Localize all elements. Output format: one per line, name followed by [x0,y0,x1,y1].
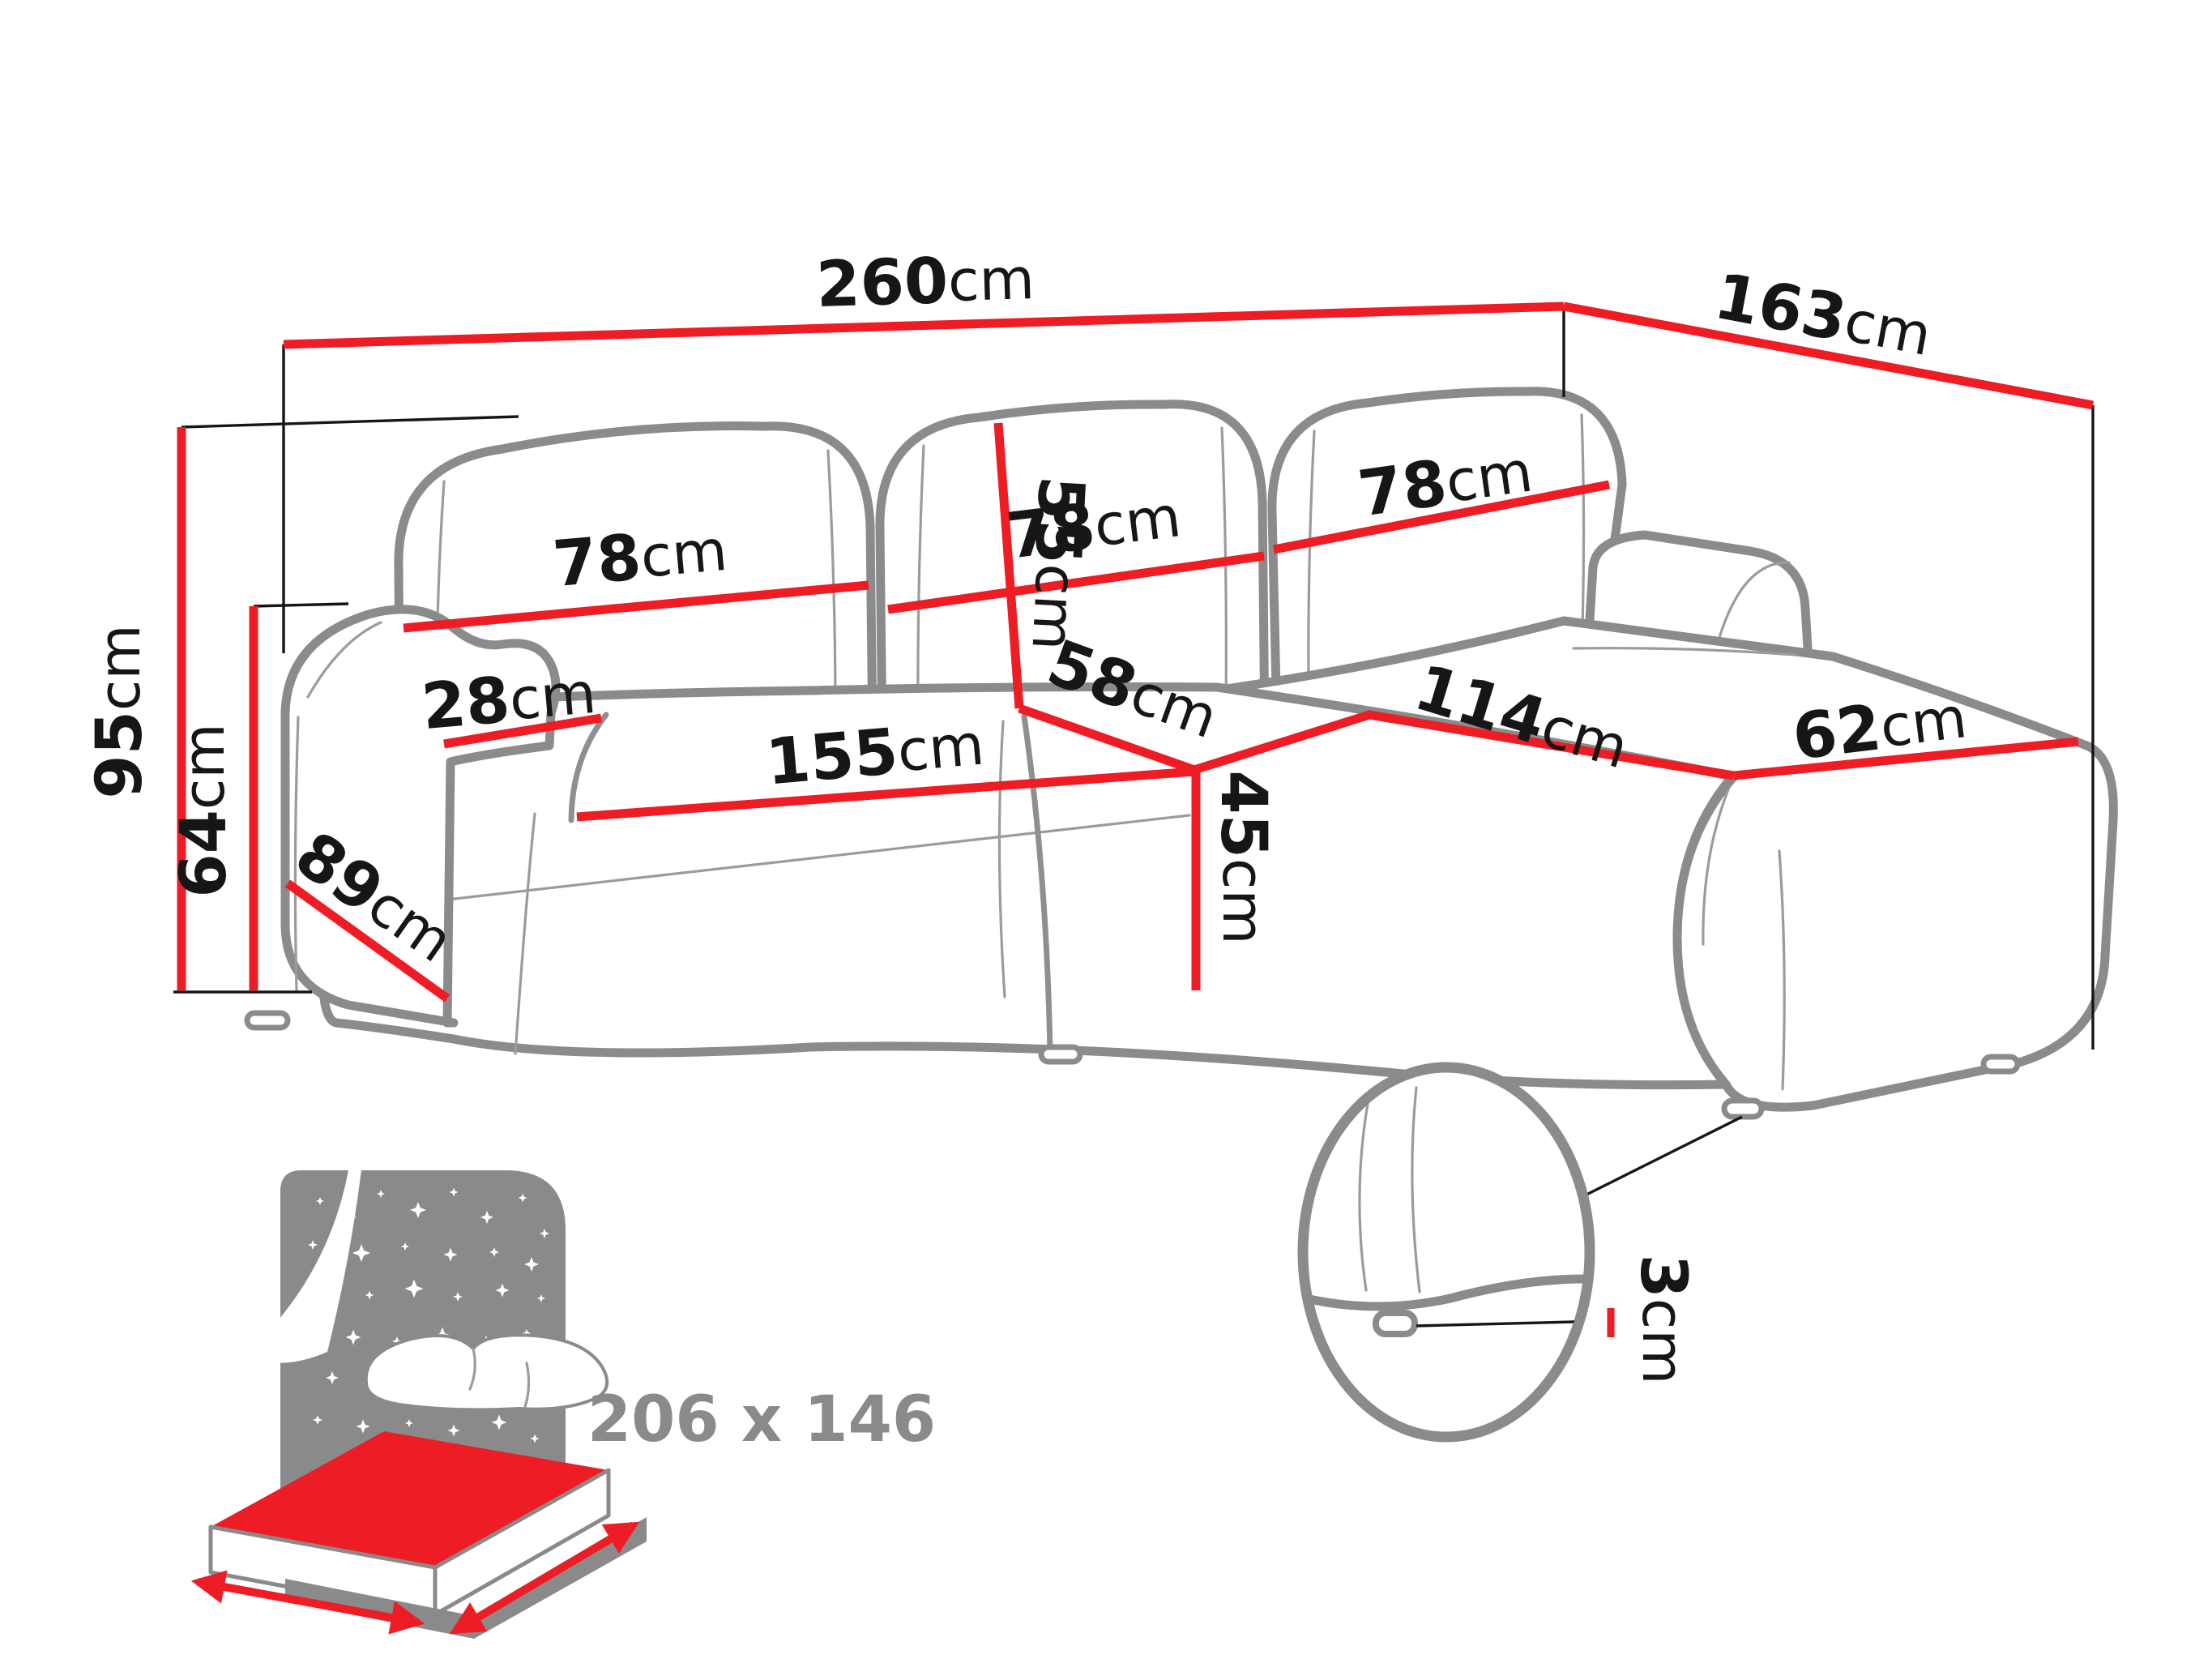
sleeping-size-label: 206 x 146 [587,1383,936,1456]
label-armrest-height: 64cm [168,723,241,897]
leg-chaise-front [1724,1101,1761,1117]
label-seat-height: 45cm [1206,770,1279,944]
label-total-height: 95cm [83,624,156,798]
label-leg-height: 3cm [1626,1255,1699,1385]
label-total-width: 260cm [815,242,1036,322]
label-backrest-height: 55cm [1015,474,1097,652]
leg-armrest [247,1013,288,1028]
magnifier-circle-leg-icon [1303,1067,1590,1437]
leg-seat [1041,1047,1080,1062]
leg-chaise-right [1984,1057,2018,1071]
sofa-dimension-diagram-page: 260cm 163cm 95cm 64cm 78cm 78cm 78cm 55c… [0,0,2212,1659]
bed-pillows [366,1335,607,1409]
sofa-dimension-diagram: 260cm 163cm 95cm 64cm 78cm 78cm 78cm 55c… [0,0,2212,1659]
detail-leg [1376,1313,1415,1334]
